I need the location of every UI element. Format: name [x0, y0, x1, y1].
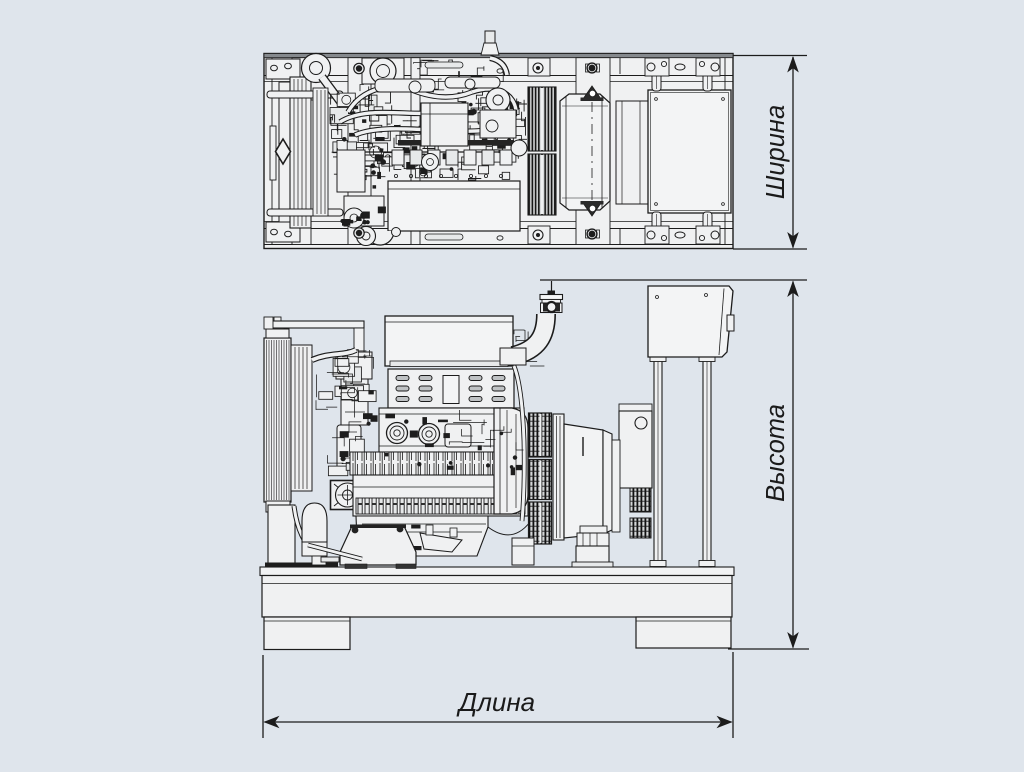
svg-text:Длина: Длина [456, 687, 535, 717]
svg-text:Ширина: Ширина [762, 105, 790, 199]
svg-text:Высота: Высота [762, 404, 790, 502]
